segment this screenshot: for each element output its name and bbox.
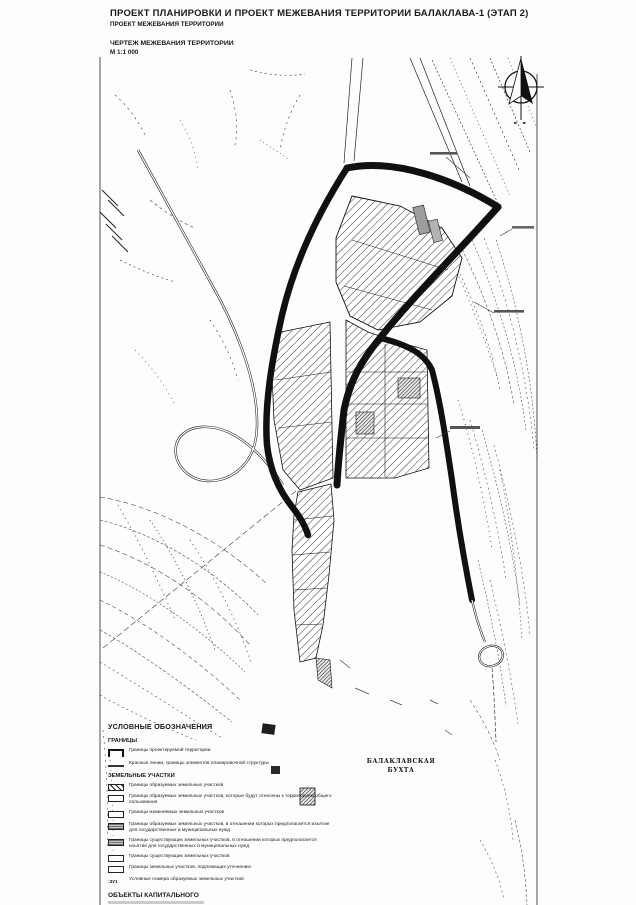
page-subtitle: ПРОЕКТ МЕЖЕВАНИЯ ТЕРРИТОРИИ xyxy=(110,21,590,28)
parcel-block-middle-left xyxy=(272,322,333,490)
serpentine-road-west xyxy=(138,150,283,485)
terrain-contours-east xyxy=(446,238,537,905)
hatch-swatch-icon xyxy=(108,784,124,791)
gray-swatch-icon xyxy=(108,839,124,846)
white-swatch-icon xyxy=(108,866,124,873)
bay-label-line1: БАЛАКЛАВСКАЯ xyxy=(358,757,444,766)
page-title: ПРОЕКТ ПЛАНИРОВКИ И ПРОЕКТ МЕЖЕВАНИЯ ТЕР… xyxy=(110,8,590,19)
white-swatch-icon xyxy=(108,795,124,802)
red-line-icon xyxy=(108,765,124,767)
faint-scan-text xyxy=(108,901,204,904)
parcel-number-icon: :ЗУ1 xyxy=(108,878,124,885)
road-east-shore xyxy=(472,600,506,742)
bay-label: БАЛАКЛАВСКАЯ БУХТА xyxy=(358,757,444,775)
legend-item: Границы образуемых земельных участков xyxy=(108,783,332,791)
legend-title: УСЛОВНЫЕ ОБОЗНАЧЕНИЯ xyxy=(108,722,332,731)
title-block: ПРОЕКТ ПЛАНИРОВКИ И ПРОЕКТ МЕЖЕВАНИЯ ТЕР… xyxy=(110,8,590,56)
legend-item: Границы проектируемой территории xyxy=(108,748,332,757)
white-swatch-icon xyxy=(108,855,124,862)
slope-hatch-west xyxy=(100,190,128,252)
white-swatch-icon xyxy=(108,811,124,818)
gray-swatch-icon xyxy=(108,823,124,830)
drawing-title: ЧЕРТЕЖ МЕЖЕВАНИЯ ТЕРРИТОРИИ xyxy=(110,40,590,47)
legend-item: Границы существующих земельных участков xyxy=(108,854,332,862)
roads-north-edge xyxy=(344,58,537,208)
legend-item: Границы образуемых земельных участков, к… xyxy=(108,794,332,806)
legend-item: :ЗУ1 Условные номера образуемых земельны… xyxy=(108,877,332,885)
legend-footer-heading: ОБЪЕКТЫ КАПИТАЛЬНОГО xyxy=(108,892,332,899)
legend-item: Границы земельных участков, подлежащих у… xyxy=(108,865,332,873)
parcel-block-middle-right xyxy=(346,320,429,478)
scanned-plan-page: { "page": { "title": "ПРОЕКТ ПЛАНИРОВКИ … xyxy=(0,0,636,905)
legend-item: Границы образуемых земельных участков, в… xyxy=(108,822,332,834)
bay-label-line2: БУХТА xyxy=(358,766,444,775)
legend-item: Границы существующих земельных участков,… xyxy=(108,838,332,850)
project-boundary-icon xyxy=(108,749,124,757)
legend-item: Границы изменяемых земельных участков xyxy=(108,810,332,818)
legend: УСЛОВНЫЕ ОБОЗНАЧЕНИЯ ГРАНИЦЫ Границы про… xyxy=(108,722,332,904)
legend-item: Красные линии, границы элементов планиро… xyxy=(108,761,332,767)
map-scale: М 1:1 000 xyxy=(110,49,590,56)
legend-section-parcels: ЗЕМЕЛЬНЫЕ УЧАСТКИ xyxy=(108,773,332,779)
legend-section-borders: ГРАНИЦЫ xyxy=(108,738,332,744)
